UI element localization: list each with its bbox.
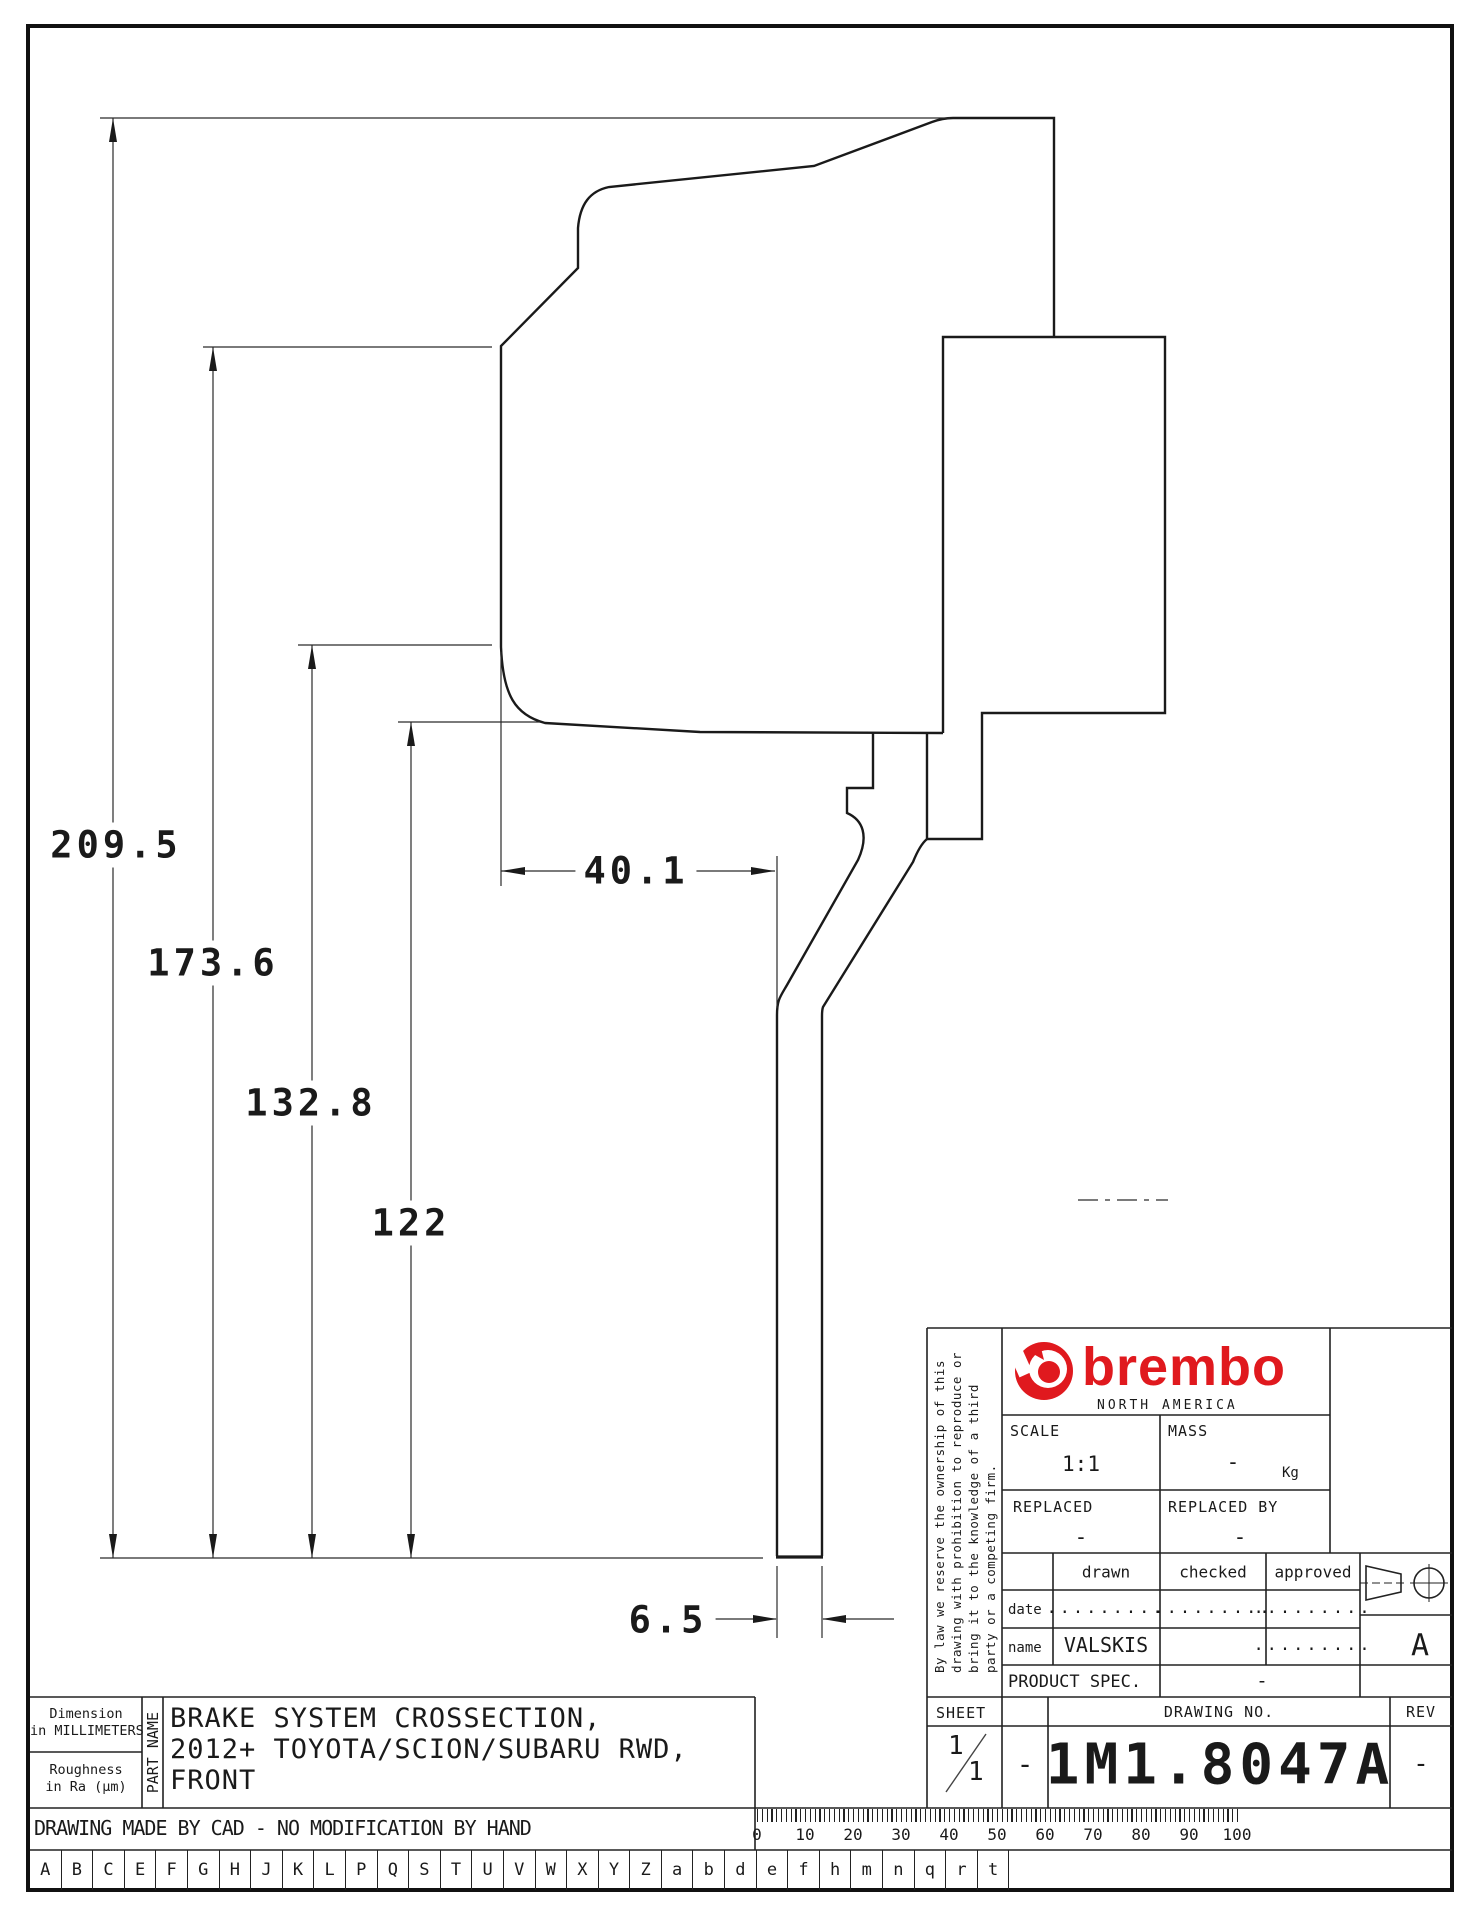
ruler-tick xyxy=(983,1809,984,1822)
roughness-note: Roughness in Ra (μm) xyxy=(30,1762,142,1796)
ruler-tick xyxy=(1179,1809,1180,1822)
ruler-tick xyxy=(1189,1809,1190,1822)
projection-symbol-icon xyxy=(1360,1564,1448,1602)
replaced-value: - xyxy=(1075,1525,1088,1549)
ruler-tick xyxy=(863,1809,864,1822)
ruler-tick xyxy=(1122,1809,1123,1822)
drawing-sheet: 209.5 173.6 132.8 122 40.1 6.5 By law we… xyxy=(0,0,1484,1920)
ruler-tick xyxy=(987,1809,988,1822)
ruler-tick xyxy=(853,1809,854,1822)
ruler-tick xyxy=(829,1809,830,1822)
ruler-tick xyxy=(1093,1809,1094,1822)
ruler-label: 0 xyxy=(737,1825,777,1844)
ruler-tick xyxy=(1035,1809,1036,1822)
drawing-no-value: 1M1.8047A xyxy=(1046,1733,1394,1798)
brembo-logo-icon xyxy=(1006,1341,1073,1400)
ruler-tick xyxy=(872,1809,873,1822)
legal-line: party or a competing firm. xyxy=(982,1352,999,1673)
ruler-tick xyxy=(762,1809,763,1822)
ruler-tick xyxy=(1002,1809,1003,1822)
ruler-tick xyxy=(1170,1809,1171,1822)
letter-cell: H xyxy=(220,1850,252,1890)
ruler-tick xyxy=(915,1809,916,1822)
rev-value: - xyxy=(1413,1749,1429,1779)
letter-cell: r xyxy=(946,1850,978,1890)
letter-cell: J xyxy=(251,1850,283,1890)
scale-value: 1:1 xyxy=(1062,1452,1100,1476)
ruler-tick xyxy=(805,1809,806,1822)
replaced-by-label: REPLACED BY xyxy=(1168,1498,1278,1516)
letter-cell: h xyxy=(820,1850,852,1890)
ruler-tick xyxy=(1175,1809,1176,1822)
ruler-tick xyxy=(1227,1809,1228,1822)
dimension-label-132-8: 132.8 xyxy=(237,1081,384,1126)
ruler-tick xyxy=(1040,1809,1041,1822)
ruler-tick xyxy=(1050,1809,1051,1822)
ruler-tick xyxy=(882,1809,883,1822)
ruler-tick xyxy=(1184,1809,1185,1822)
sheet-dash: - xyxy=(1017,1748,1034,1781)
ruler-tick xyxy=(1026,1809,1027,1822)
date-drawn-value: ......... xyxy=(1046,1598,1165,1618)
ruler-tick xyxy=(1064,1809,1065,1822)
ruler-tick xyxy=(771,1809,772,1822)
ruler-tick xyxy=(1007,1809,1008,1822)
ruler-tick xyxy=(1203,1809,1204,1822)
ruler-tick xyxy=(1165,1809,1166,1822)
ruler-tick xyxy=(1021,1809,1022,1822)
ruler-tick xyxy=(925,1809,926,1822)
ruler-tick xyxy=(901,1809,902,1822)
ruler-tick xyxy=(1083,1809,1084,1822)
ruler-tick xyxy=(1223,1809,1224,1822)
sheet-denominator: 1 xyxy=(968,1757,984,1787)
ruler-label: 50 xyxy=(977,1825,1017,1844)
name-drawn-value: VALSKIS xyxy=(1064,1633,1148,1657)
ruler-tick xyxy=(896,1809,897,1822)
letter-cell: A xyxy=(30,1850,62,1890)
ruler-tick xyxy=(963,1809,964,1822)
ruler-tick xyxy=(1055,1809,1056,1822)
ruler-tick xyxy=(877,1809,878,1822)
ruler-label: 100 xyxy=(1217,1825,1257,1844)
part-name-column-label: PART NAME xyxy=(144,1712,162,1793)
letter-cell: e xyxy=(757,1850,789,1890)
ruler-tick xyxy=(1237,1809,1238,1822)
sheet-label: SHEET xyxy=(936,1704,986,1722)
part-name-column: PART NAME xyxy=(142,1697,163,1808)
ruler-tick xyxy=(1151,1809,1152,1822)
ruler-tick xyxy=(776,1809,777,1822)
roughness-note-line1: Roughness xyxy=(30,1762,142,1779)
ruler-tick xyxy=(791,1809,792,1822)
letter-cell: Y xyxy=(599,1850,631,1890)
part-outline xyxy=(501,118,1165,1557)
ruler-tick xyxy=(891,1809,892,1822)
ruler-tick xyxy=(887,1809,888,1822)
letter-cell: m xyxy=(851,1850,883,1890)
letter-cell: V xyxy=(504,1850,536,1890)
letter-cell: L xyxy=(314,1850,346,1890)
replaced-by-value: - xyxy=(1234,1525,1247,1549)
ruler-tick xyxy=(1146,1809,1147,1822)
ruler-tick xyxy=(930,1809,931,1822)
ruler-tick xyxy=(1031,1809,1032,1822)
brembo-subtitle: NORTH AMERICA xyxy=(1097,1398,1238,1413)
ruler-tick xyxy=(795,1809,796,1822)
dimension-label-209-5: 209.5 xyxy=(42,823,189,868)
letter-cell: Z xyxy=(630,1850,662,1890)
letter-cell: q xyxy=(915,1850,947,1890)
legal-line: drawing with prohibition to reproduce or xyxy=(948,1352,965,1673)
ruler-tick xyxy=(815,1809,816,1822)
ruler-tick xyxy=(911,1809,912,1822)
ruler-tick xyxy=(944,1809,945,1822)
ruler-tick xyxy=(1131,1809,1132,1822)
ruler-tick xyxy=(781,1809,782,1822)
ruler-tick xyxy=(1160,1809,1161,1822)
ruler-tick xyxy=(1218,1809,1219,1822)
legal-line: bring it to the knowledge of a third xyxy=(965,1352,982,1673)
ruler-label: 30 xyxy=(881,1825,921,1844)
format-letter: A xyxy=(1411,1629,1429,1664)
dimension-label-122: 122 xyxy=(364,1201,459,1246)
letter-cell: E xyxy=(125,1850,157,1890)
ruler-tick xyxy=(1194,1809,1195,1822)
part-name-text: BRAKE SYSTEM CROSSECTION, 2012+ TOYOTA/S… xyxy=(170,1703,688,1796)
letter-cell: n xyxy=(883,1850,915,1890)
ruler-tick xyxy=(978,1809,979,1822)
letter-cell: C xyxy=(93,1850,125,1890)
scale-label: SCALE xyxy=(1010,1422,1060,1440)
dimension-note-line1: Dimension xyxy=(30,1706,142,1723)
ruler-tick xyxy=(810,1809,811,1822)
mass-unit: Kg xyxy=(1282,1465,1299,1481)
cad-note: DRAWING MADE BY CAD - NO MODIFICATION BY… xyxy=(34,1816,531,1840)
ruler-tick xyxy=(1117,1809,1118,1822)
ruler-tick xyxy=(1232,1809,1233,1822)
ruler-tick xyxy=(906,1809,907,1822)
ruler-label: 70 xyxy=(1073,1825,1113,1844)
letter-cell: t xyxy=(978,1850,1010,1890)
ruler-tick xyxy=(767,1809,768,1822)
ruler-label: 90 xyxy=(1169,1825,1209,1844)
ruler-tick xyxy=(992,1809,993,1822)
letter-cell: F xyxy=(156,1850,188,1890)
letter-cell: X xyxy=(567,1850,599,1890)
ruler-tick xyxy=(848,1809,849,1822)
part-name-line1: BRAKE SYSTEM CROSSECTION, xyxy=(170,1703,688,1734)
mass-value: - xyxy=(1227,1450,1240,1474)
ruler-label: 60 xyxy=(1025,1825,1065,1844)
part-name-line3: FRONT xyxy=(170,1765,688,1796)
ruler-tick xyxy=(954,1809,955,1822)
ruler-tick xyxy=(1074,1809,1075,1822)
ruler-tick xyxy=(1069,1809,1070,1822)
ruler-tick xyxy=(1059,1809,1060,1822)
product-spec-value: - xyxy=(1256,1670,1267,1692)
legal-notice-strip: By law we reserve the ownership of this … xyxy=(929,1332,1001,1694)
ruler-tick xyxy=(1107,1809,1108,1822)
ruler-tick xyxy=(834,1809,835,1822)
ruler-tick xyxy=(1155,1809,1156,1822)
letter-cell: U xyxy=(472,1850,504,1890)
ruler-tick xyxy=(935,1809,936,1822)
ruler-tick xyxy=(939,1809,940,1822)
brembo-wordmark: brembo xyxy=(1082,1340,1286,1394)
ruler-tick xyxy=(973,1809,974,1822)
ruler-tick xyxy=(1103,1809,1104,1822)
mass-label: MASS xyxy=(1168,1422,1208,1440)
ruler-tick xyxy=(839,1809,840,1822)
letter-cell: Q xyxy=(378,1850,410,1890)
dimension-note-line2: in MILLIMETERS xyxy=(30,1723,142,1740)
ruler-tick xyxy=(786,1809,787,1822)
ruler-tick xyxy=(1136,1809,1137,1822)
date-approved-value: ......... xyxy=(1253,1598,1372,1618)
dimension-note: Dimension in MILLIMETERS xyxy=(30,1706,142,1740)
ruler: 0102030405060708090100 xyxy=(755,1808,1452,1850)
ruler-tick xyxy=(819,1809,820,1822)
ruler-tick xyxy=(858,1809,859,1822)
letter-cell: G xyxy=(188,1850,220,1890)
ruler-tick xyxy=(1079,1809,1080,1822)
drawing-no-label: DRAWING NO. xyxy=(1164,1703,1274,1721)
ruler-tick xyxy=(757,1809,758,1822)
ruler-tick xyxy=(997,1809,998,1822)
dimension-label-40-1: 40.1 xyxy=(575,849,696,894)
dimension-label-6-5: 6.5 xyxy=(621,1598,716,1643)
date-row-label: date xyxy=(1008,1602,1042,1618)
letter-cell: W xyxy=(536,1850,568,1890)
ruler-tick xyxy=(1208,1809,1209,1822)
part-name-line2: 2012+ TOYOTA/SCION/SUBARU RWD, xyxy=(170,1734,688,1765)
legal-line: By law we reserve the ownership of this xyxy=(931,1352,948,1673)
ruler-tick xyxy=(843,1809,844,1822)
letter-cell: S xyxy=(409,1850,441,1890)
ruler-tick xyxy=(1112,1809,1113,1822)
replaced-label: REPLACED xyxy=(1013,1498,1093,1516)
ruler-tick xyxy=(867,1809,868,1822)
ruler-tick xyxy=(824,1809,825,1822)
ruler-tick xyxy=(800,1809,801,1822)
name-row-label: name xyxy=(1008,1640,1042,1656)
letter-cell: T xyxy=(441,1850,473,1890)
letter-cell: B xyxy=(62,1850,94,1890)
ruler-tick xyxy=(1213,1809,1214,1822)
name-approved-value: ......... xyxy=(1253,1635,1372,1655)
ruler-tick xyxy=(1127,1809,1128,1822)
letter-cell: b xyxy=(693,1850,725,1890)
checked-header: checked xyxy=(1179,1563,1246,1582)
ruler-label: 40 xyxy=(929,1825,969,1844)
letter-strip-filler xyxy=(1009,1850,1452,1890)
letter-cell: d xyxy=(725,1850,757,1890)
ruler-label: 80 xyxy=(1121,1825,1161,1844)
dimension-label-173-6: 173.6 xyxy=(139,941,286,986)
product-spec-label: PRODUCT SPEC. xyxy=(1008,1672,1141,1692)
rev-label: REV xyxy=(1406,1703,1436,1721)
ruler-tick xyxy=(1199,1809,1200,1822)
ruler-tick xyxy=(1045,1809,1046,1822)
ruler-tick xyxy=(959,1809,960,1822)
ruler-label: 20 xyxy=(833,1825,873,1844)
ruler-tick xyxy=(1016,1809,1017,1822)
ruler-tick xyxy=(1141,1809,1142,1822)
letter-cell: K xyxy=(283,1850,315,1890)
ruler-tick xyxy=(1098,1809,1099,1822)
approved-header: approved xyxy=(1274,1563,1351,1582)
ruler-tick xyxy=(1011,1809,1012,1822)
letter-cell: f xyxy=(788,1850,820,1890)
ruler-tick xyxy=(920,1809,921,1822)
ruler-tick xyxy=(1088,1809,1089,1822)
ruler-tick xyxy=(968,1809,969,1822)
ruler-tick xyxy=(949,1809,950,1822)
ruler-label: 10 xyxy=(785,1825,825,1844)
letter-strip: ABCEFGHJKLPQSTUVWXYZabdefhmnqrt xyxy=(30,1850,1452,1890)
roughness-note-line2: in Ra (μm) xyxy=(30,1779,142,1796)
drawn-header: drawn xyxy=(1082,1563,1130,1582)
letter-cell: P xyxy=(346,1850,378,1890)
letter-cell: a xyxy=(662,1850,694,1890)
sheet-numerator: 1 xyxy=(948,1731,964,1761)
